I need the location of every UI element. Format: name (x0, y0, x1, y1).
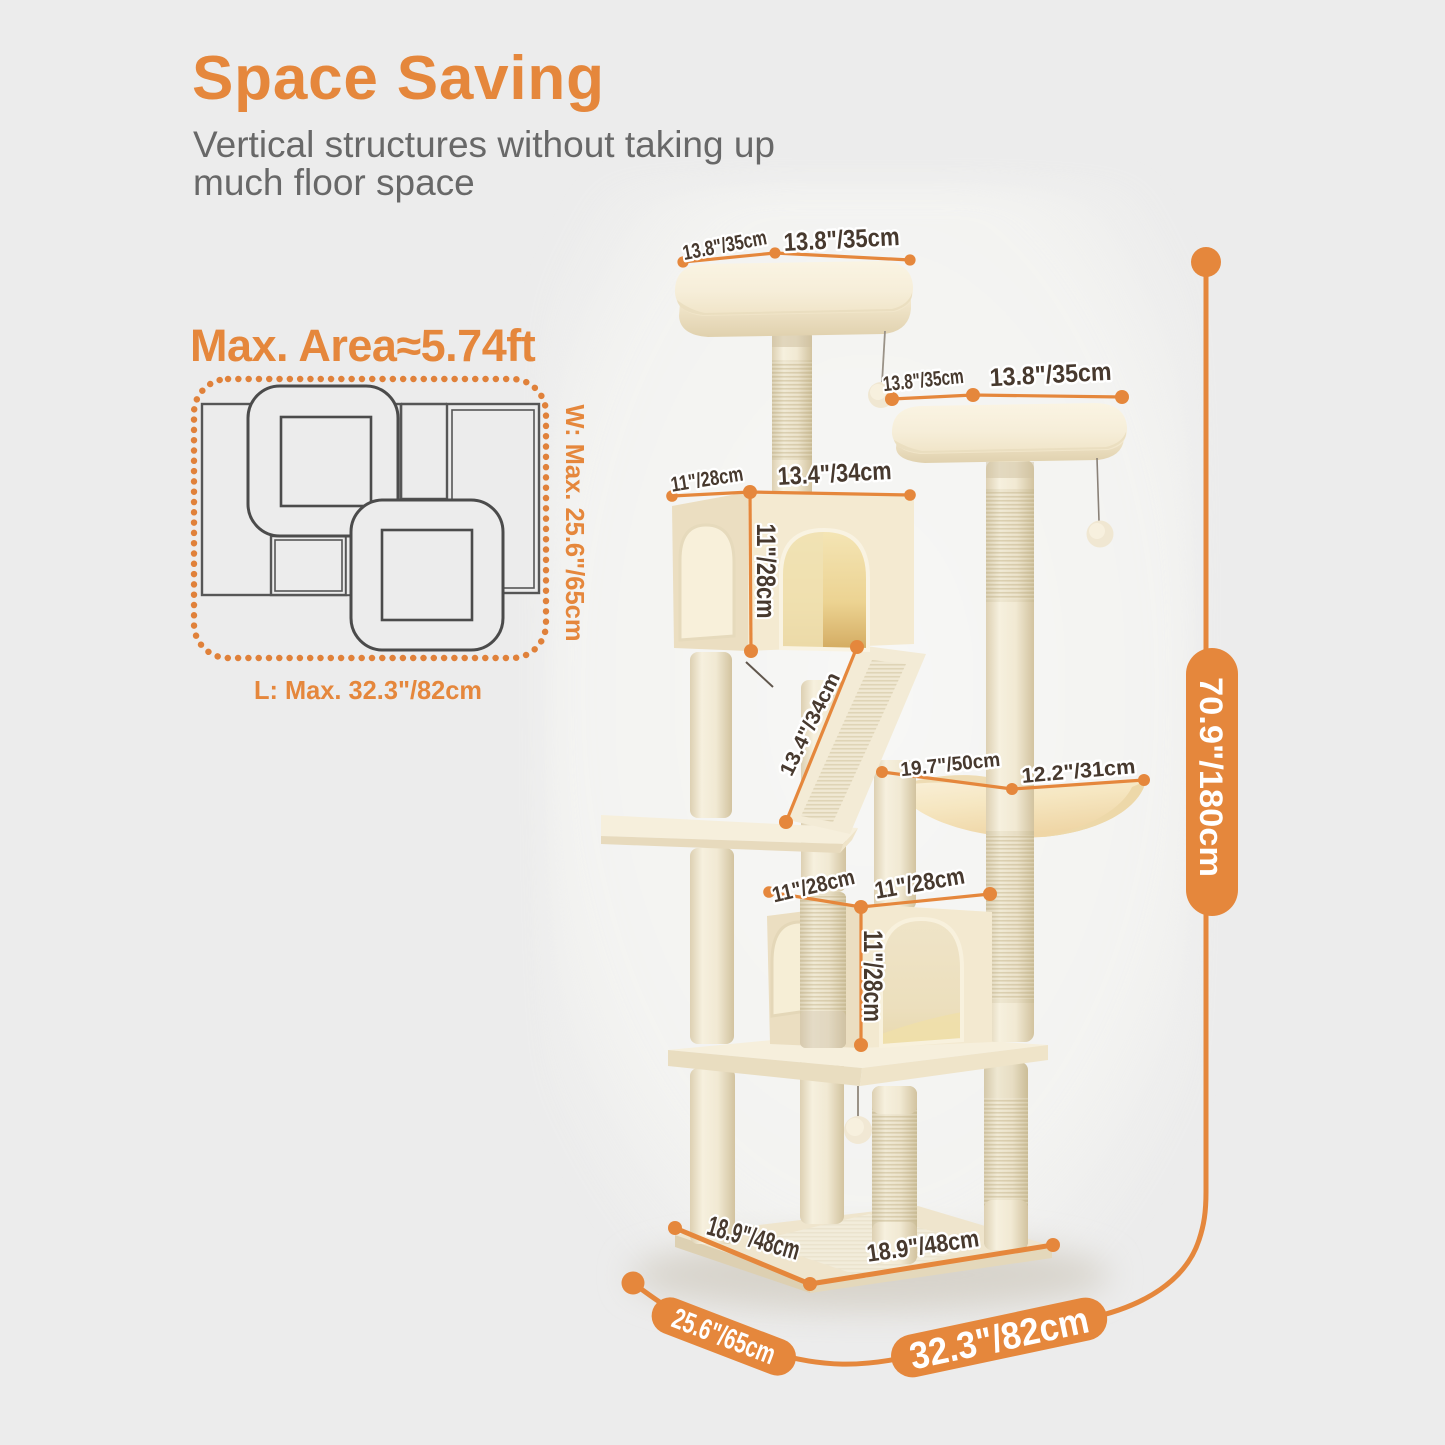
svg-text:Space Saving: Space Saving (192, 44, 605, 113)
svg-text:W: Max. 25.6"/65cm: W: Max. 25.6"/65cm (560, 405, 590, 642)
svg-text:much floor space: much floor space (193, 162, 475, 203)
svg-text:Max. Area≈5.74ft: Max. Area≈5.74ft (190, 320, 536, 371)
svg-text:Vertical structures without ta: Vertical structures without taking up (193, 124, 775, 165)
svg-text:11"/28cm: 11"/28cm (858, 930, 888, 1022)
svg-text:13.4"/34cm: 13.4"/34cm (777, 457, 892, 491)
svg-text:11"/28cm: 11"/28cm (751, 524, 781, 619)
svg-text:70.9"/180cm: 70.9"/180cm (1193, 677, 1229, 877)
svg-text:L: Max. 32.3"/82cm: L: Max. 32.3"/82cm (254, 675, 482, 705)
